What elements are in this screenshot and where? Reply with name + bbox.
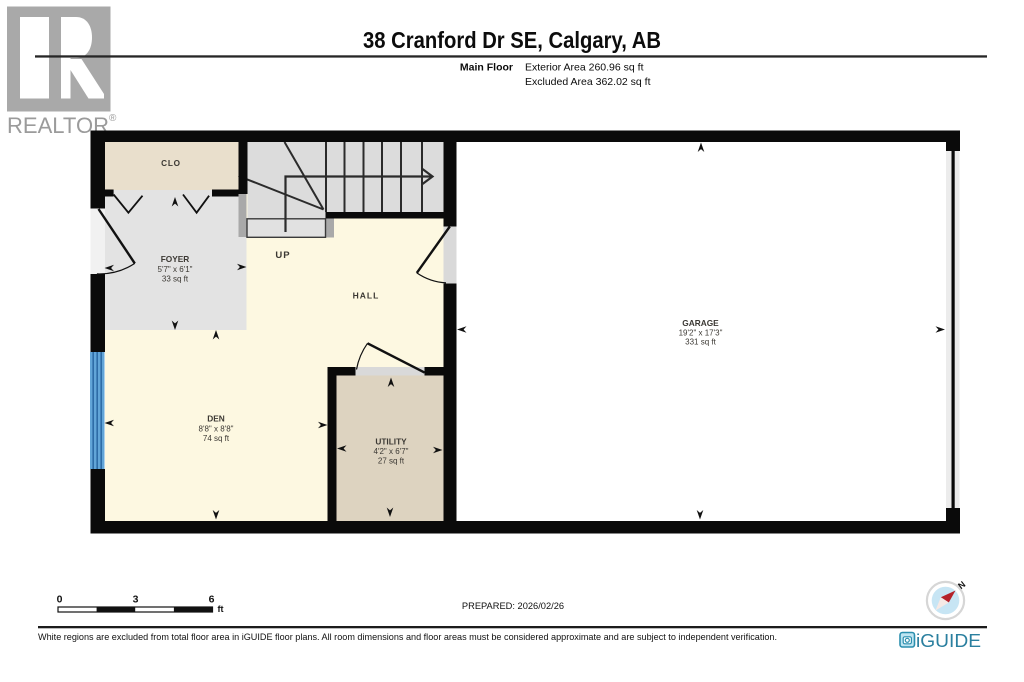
svg-text:FOYER: FOYER (161, 254, 190, 264)
svg-text:4'2" x 6'7": 4'2" x 6'7" (374, 447, 409, 456)
svg-text:331 sq ft: 331 sq ft (685, 338, 716, 347)
svg-text:6: 6 (209, 594, 215, 606)
svg-text:ft: ft (218, 604, 224, 614)
svg-text:UP: UP (275, 250, 290, 261)
svg-text:8'8" x 8'8": 8'8" x 8'8" (199, 425, 234, 434)
svg-text:UTILITY: UTILITY (375, 437, 407, 447)
svg-text:0: 0 (57, 594, 63, 606)
svg-text:Excluded Area 362.02 sq ft: Excluded Area 362.02 sq ft (525, 76, 651, 88)
svg-text:HALL: HALL (353, 291, 380, 301)
svg-text:19'2" x 17'3": 19'2" x 17'3" (679, 329, 723, 338)
svg-text:74 sq ft: 74 sq ft (203, 434, 230, 443)
svg-text:DEN: DEN (207, 414, 225, 424)
svg-text:Exterior Area 260.96 sq ft: Exterior Area 260.96 sq ft (525, 62, 644, 74)
svg-text:White regions are excluded fro: White regions are excluded from total fl… (38, 632, 777, 642)
svg-text:CLO: CLO (161, 159, 181, 168)
svg-text:27 sq ft: 27 sq ft (378, 457, 405, 466)
svg-text:33 sq ft: 33 sq ft (162, 275, 189, 284)
svg-text:38 Cranford Dr SE, Calgary, AB: 38 Cranford Dr SE, Calgary, AB (363, 27, 661, 53)
svg-text:PREPARED: 2026/02/26: PREPARED: 2026/02/26 (462, 601, 564, 611)
svg-text:®: ® (109, 113, 117, 124)
svg-text:3: 3 (133, 594, 139, 606)
svg-text:Main Floor: Main Floor (460, 62, 513, 74)
svg-text:5'7" x 6'1": 5'7" x 6'1" (158, 265, 193, 274)
svg-text:GARAGE: GARAGE (682, 318, 719, 328)
svg-text:iGUIDE: iGUIDE (916, 631, 981, 651)
